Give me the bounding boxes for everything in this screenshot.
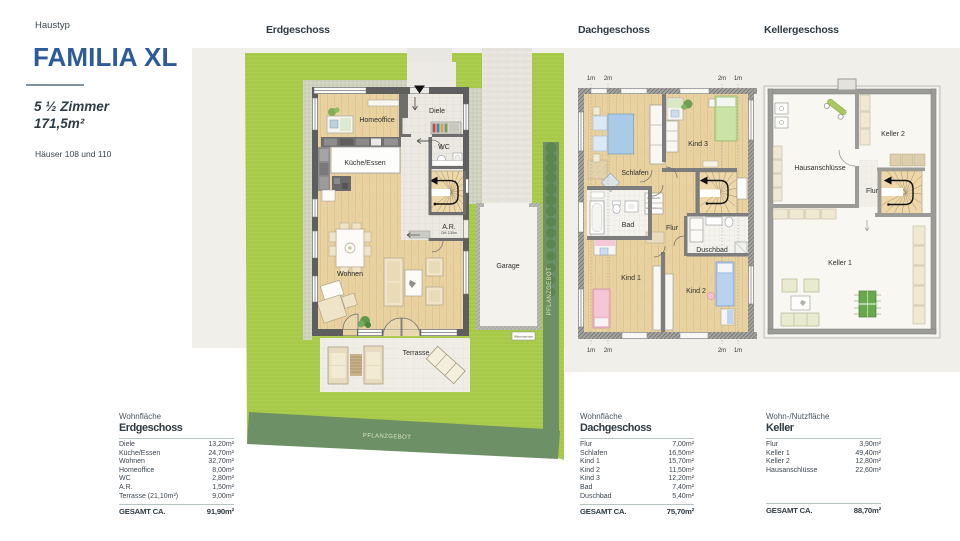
- svg-text:Küche/Essen: Küche/Essen: [344, 160, 385, 167]
- svg-text:2m: 2m: [718, 348, 726, 354]
- svg-text:Duschbad: Duschbad: [696, 247, 728, 254]
- svg-text:PFLANZGEBOT: PFLANZGEBOT: [547, 267, 553, 315]
- svg-text:DH: 2,30m: DH: 2,30m: [441, 231, 457, 235]
- svg-text:Homeoffice: Homeoffice: [359, 117, 394, 124]
- svg-text:Bad: Bad: [622, 222, 635, 229]
- svg-text:Flur: Flur: [866, 188, 879, 195]
- svg-text:Flur: Flur: [666, 225, 679, 232]
- svg-text:Wärmepumpe: Wärmepumpe: [514, 335, 533, 339]
- svg-text:2m: 2m: [604, 348, 612, 354]
- svg-text:Hausanschlüsse: Hausanschlüsse: [794, 165, 845, 172]
- svg-text:Kind 2: Kind 2: [686, 288, 706, 295]
- svg-text:Garage: Garage: [496, 263, 519, 270]
- svg-text:Keller 1: Keller 1: [828, 260, 852, 267]
- svg-text:1m: 1m: [734, 348, 742, 354]
- svg-text:Wohnen: Wohnen: [337, 271, 363, 278]
- svg-text:A.R.: A.R.: [442, 224, 456, 231]
- svg-text:1m: 1m: [587, 76, 595, 82]
- svg-text:Terrasse: Terrasse: [403, 350, 430, 357]
- svg-text:Schlafen: Schlafen: [621, 170, 648, 177]
- svg-text:Kind 3: Kind 3: [688, 141, 708, 148]
- svg-text:1m: 1m: [734, 76, 742, 82]
- svg-text:Kind 1: Kind 1: [621, 275, 641, 282]
- svg-text:2m: 2m: [718, 76, 726, 82]
- svg-text:WC: WC: [438, 144, 450, 151]
- svg-text:1m: 1m: [587, 348, 595, 354]
- svg-text:Diele: Diele: [429, 108, 445, 115]
- svg-text:Keller 2: Keller 2: [881, 131, 905, 138]
- svg-text:2m: 2m: [604, 76, 612, 82]
